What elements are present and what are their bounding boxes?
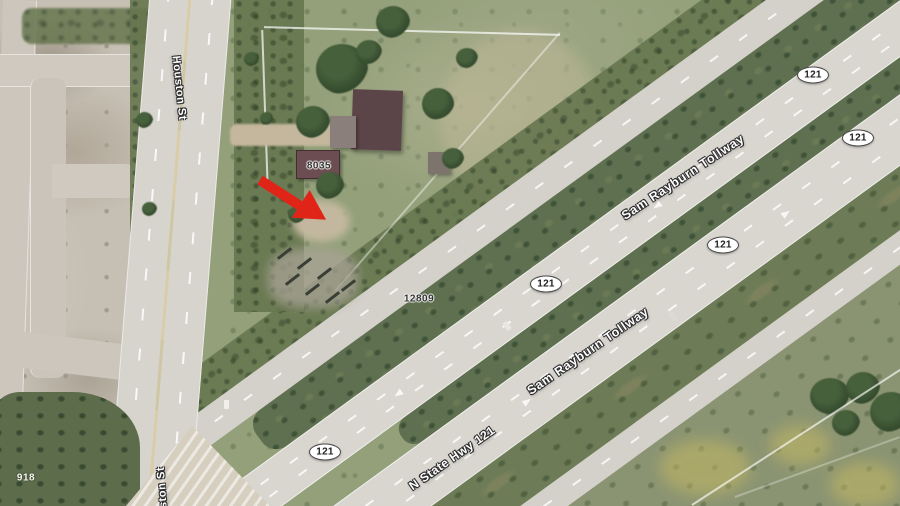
dry-weed-patch (770, 425, 830, 465)
tree-canopy (832, 410, 860, 436)
map-canvas[interactable]: Houston St Houston St Sam Rayburn Tollwa… (0, 0, 900, 506)
dry-weed-patch (660, 440, 750, 495)
highway-shield-121: 121 (309, 444, 341, 461)
tree-canopy (376, 6, 410, 38)
tree-canopy (142, 202, 157, 216)
dry-weed-patch (830, 462, 900, 506)
scrub-area-bottom-left (0, 392, 140, 506)
highway-shield-121: 121 (842, 130, 874, 147)
tree-canopy (260, 112, 273, 125)
tree-canopy (356, 40, 382, 64)
highway-shield-121: 121 (707, 237, 739, 254)
red-arrow-annotation (240, 158, 350, 243)
center-line (145, 0, 192, 506)
house-wing (330, 116, 356, 148)
vehicle (224, 400, 229, 409)
highway-shield-121: 121 (530, 276, 562, 293)
parcel-label-918: 918 (17, 473, 35, 484)
tree-canopy (810, 378, 850, 414)
tree-canopy (422, 88, 454, 120)
highway-shield-121: 121 (797, 67, 829, 84)
house-roof (351, 89, 403, 151)
tree-canopy (136, 112, 153, 128)
tree-canopy (442, 148, 464, 169)
parcel-label-12809: 12809 (404, 294, 434, 305)
tree-canopy (296, 106, 330, 138)
tree-canopy (244, 52, 259, 66)
tree-canopy (456, 48, 478, 68)
